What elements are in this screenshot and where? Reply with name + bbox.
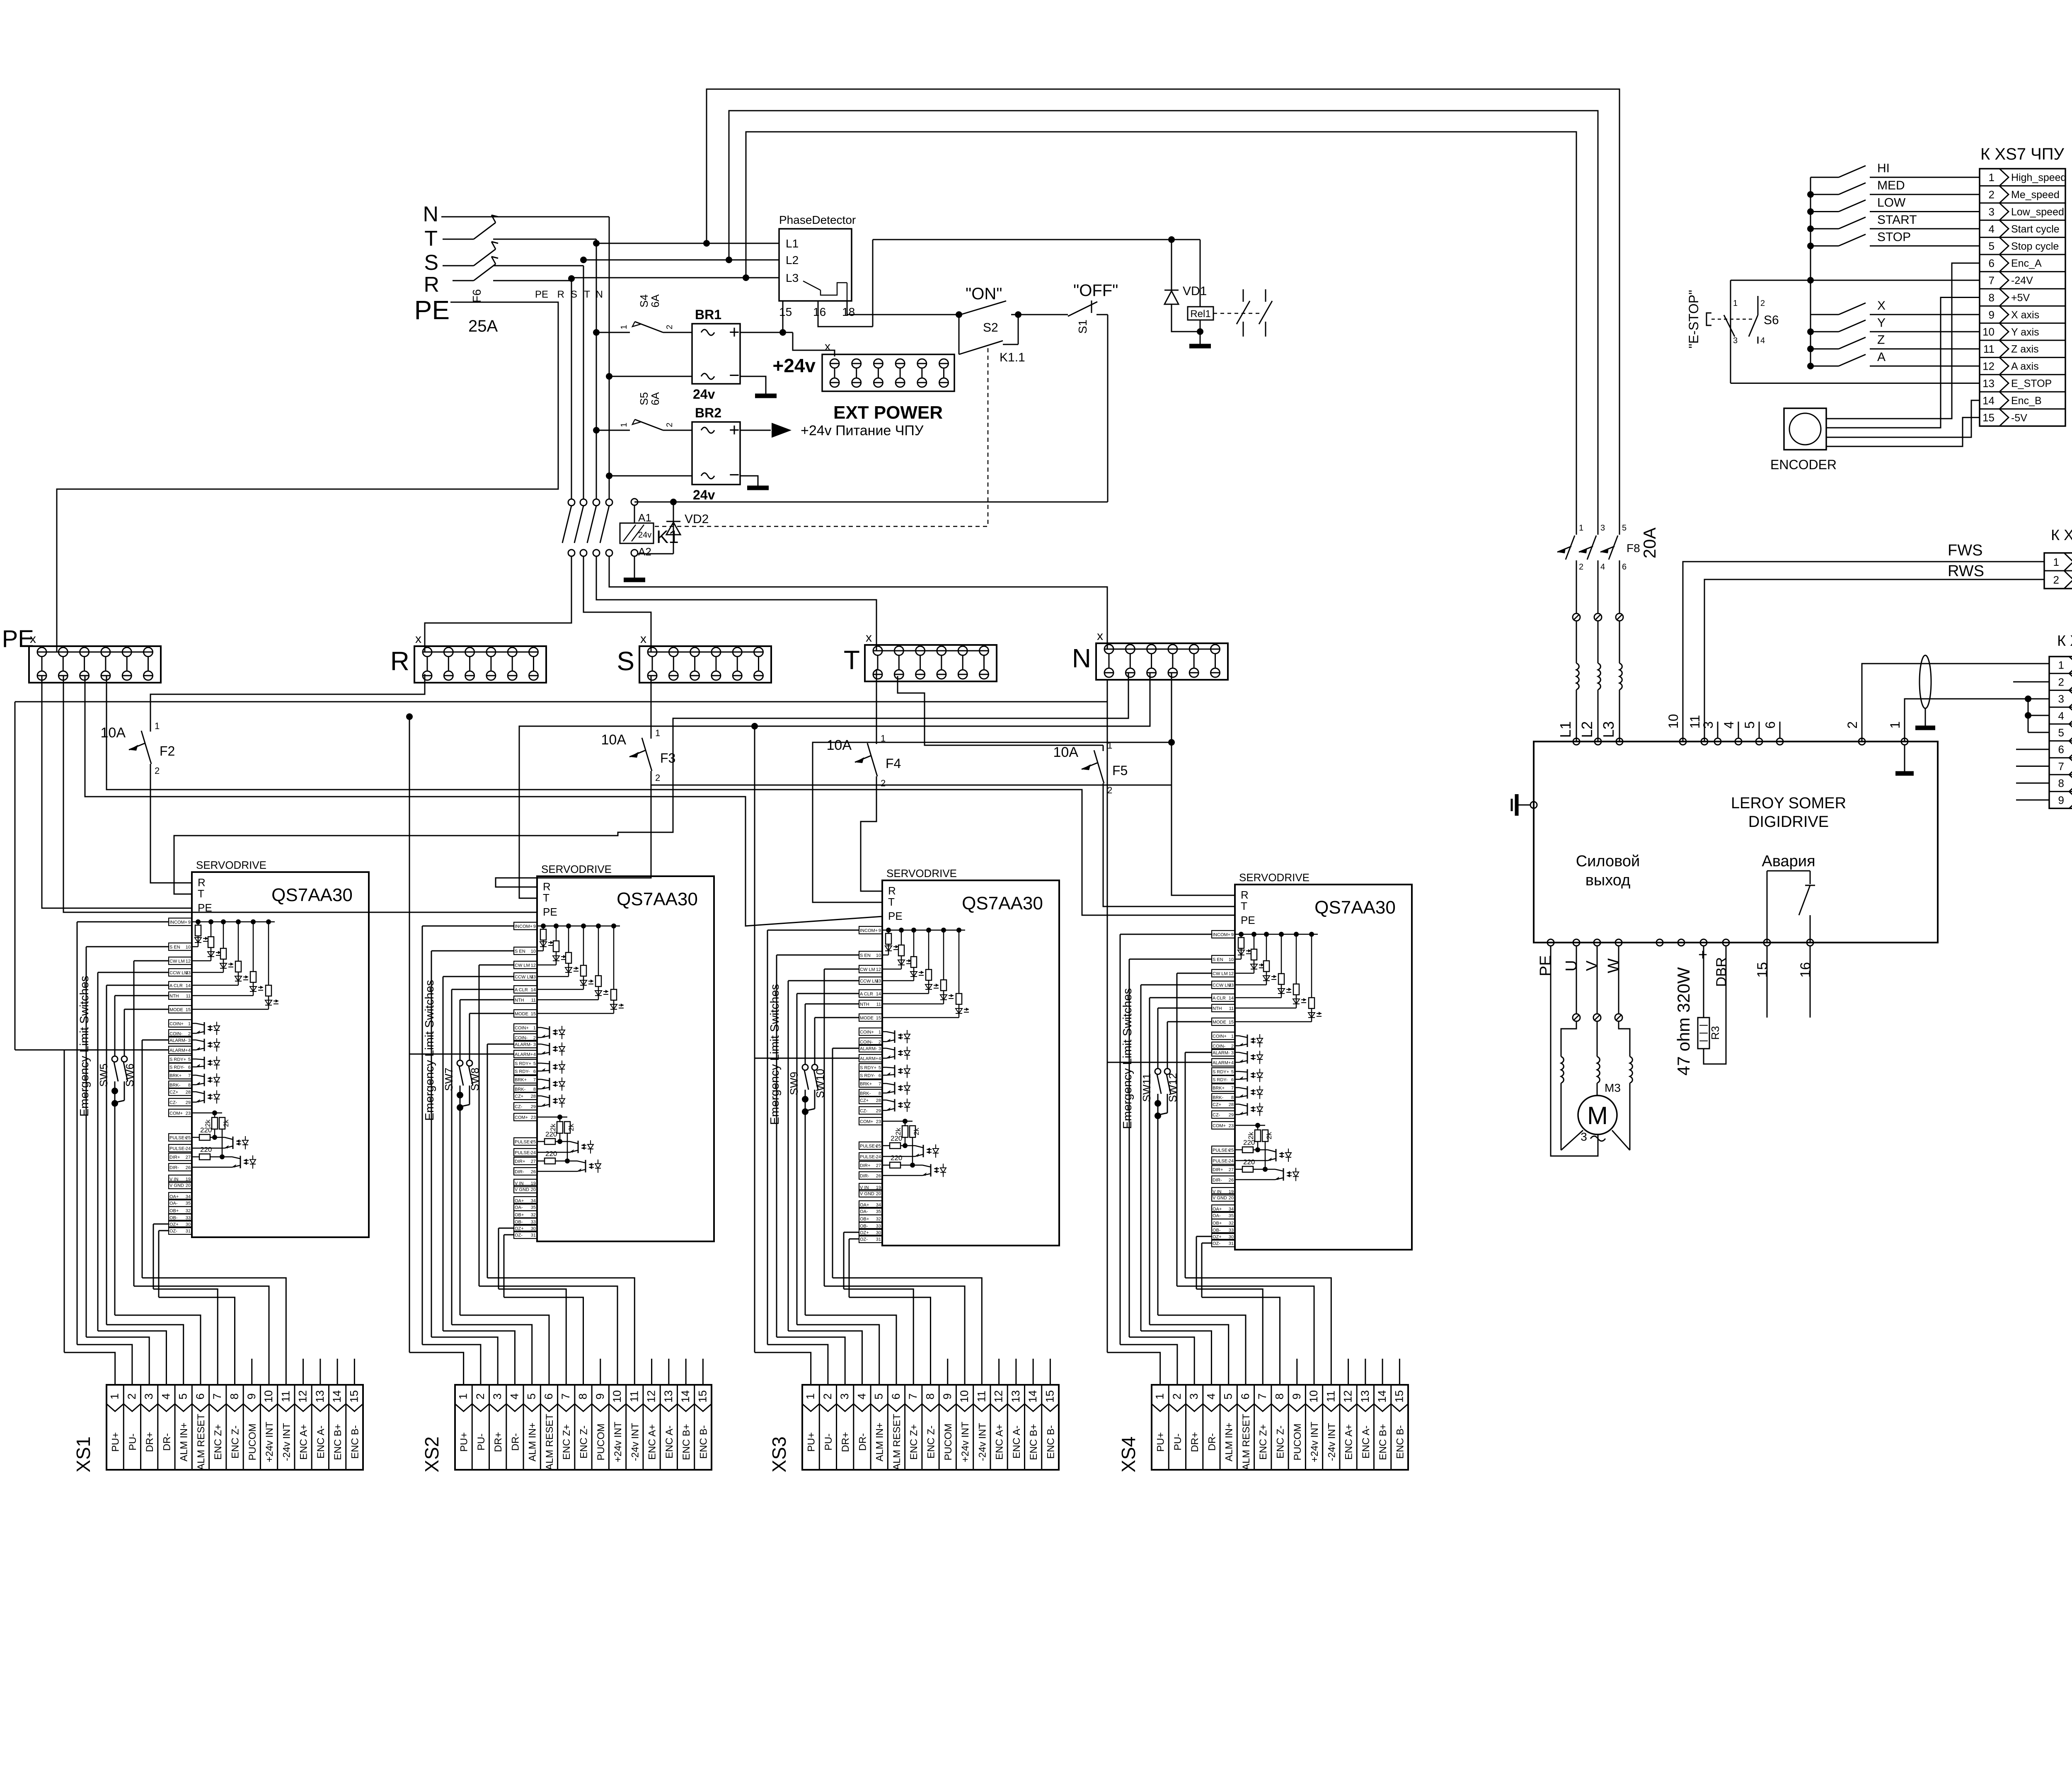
svg-text:S5: S5 [638,392,650,405]
svg-text:ENC A+: ENC A+ [647,1424,658,1460]
svg-text:8: 8 [2058,777,2064,790]
svg-text:15: 15 [531,1012,536,1017]
svg-text:PE: PE [198,902,212,914]
svg-text:3: 3 [1581,1130,1587,1143]
svg-text:T: T [1241,900,1247,912]
svg-text:2: 2 [474,1393,487,1399]
svg-text:7: 7 [559,1393,572,1399]
svg-text:ENC A+: ENC A+ [994,1424,1005,1460]
svg-text:CZ-: CZ- [515,1105,523,1110]
svg-text:4: 4 [1721,721,1736,729]
svg-text:9: 9 [1231,933,1234,938]
svg-text:13: 13 [1982,377,1995,390]
svg-text:10A: 10A [827,737,852,753]
svg-text:6A: 6A [649,392,661,405]
svg-text:DIR-: DIR- [515,1170,524,1175]
svg-text:OB+: OB+ [515,1213,524,1218]
svg-text:R: R [390,646,409,676]
svg-text:К XS8 ЧПУ: К XS8 ЧПУ [2057,632,2072,649]
svg-text:OZ+: OZ+ [1213,1235,1222,1240]
svg-text:QS7AA30: QS7AA30 [617,889,698,909]
svg-text:T: T [888,896,895,908]
svg-text:24: 24 [186,1146,191,1151]
svg-text:DBR: DBR [1714,957,1729,987]
svg-text:11: 11 [1687,715,1702,729]
svg-text:5: 5 [1231,1070,1234,1075]
svg-text:PULSE+: PULSE+ [860,1144,878,1149]
svg-text:ENC A+: ENC A+ [1343,1424,1355,1460]
svg-text:NTH: NTH [515,998,524,1003]
svg-text:2: 2 [1107,785,1112,795]
svg-text:30: 30 [531,1226,536,1231]
svg-text:6: 6 [890,1393,902,1399]
svg-text:ENC Z+: ENC Z+ [1258,1424,1269,1460]
svg-text:PE: PE [888,910,903,922]
svg-text:23: 23 [876,1120,881,1125]
svg-text:11: 11 [1229,1006,1234,1011]
svg-text:DR+: DR+ [144,1432,155,1452]
svg-text:6: 6 [1763,721,1778,729]
svg-text:ALARM-: ALARM- [1213,1051,1230,1056]
svg-text:2: 2 [879,1040,881,1045]
svg-text:32: 32 [1229,1221,1234,1226]
svg-text:ENC A+: ENC A+ [298,1424,310,1460]
svg-text:COIN+: COIN+ [1213,1034,1227,1039]
svg-text:"E-STOP": "E-STOP" [1686,290,1701,348]
svg-text:26: 26 [531,1170,536,1175]
svg-text:27: 27 [1229,1168,1234,1173]
svg-text:CZ+: CZ+ [169,1090,178,1095]
svg-text:MED: MED [1877,179,1905,192]
svg-text:COIN+: COIN+ [169,1022,184,1027]
svg-text:26: 26 [186,1166,191,1171]
svg-text:ENC Z-: ENC Z- [1275,1425,1286,1459]
svg-text:ENC B+: ENC B+ [1028,1424,1039,1460]
svg-text:10A: 10A [601,732,627,748]
svg-text:OA-: OA- [169,1201,178,1206]
svg-text:24v: 24v [638,531,651,540]
svg-text:OA+: OA+ [1213,1207,1222,1212]
svg-text:5: 5 [1222,1393,1234,1399]
svg-text:OA-: OA- [860,1209,868,1214]
svg-text:28: 28 [531,1094,536,1099]
svg-text:5: 5 [525,1393,538,1399]
svg-text:4: 4 [508,1393,520,1399]
svg-text:PU-: PU- [476,1433,487,1450]
svg-text:DR-: DR- [161,1433,172,1451]
svg-text:X: X [1877,299,1886,313]
svg-text:+24v INT: +24v INT [612,1422,624,1462]
svg-text:OB+: OB+ [860,1217,869,1222]
svg-text:4: 4 [160,1393,172,1399]
svg-text:4: 4 [533,1052,536,1057]
svg-text:A CLR: A CLR [860,992,873,997]
svg-text:BRK+: BRK+ [860,1082,872,1087]
svg-text:V GND: V GND [169,1183,184,1188]
svg-text:13: 13 [1359,1390,1371,1403]
svg-text:PULSE-: PULSE- [169,1146,186,1151]
svg-text:x: x [640,632,646,646]
svg-text:К XS6 ЧПУ: К XS6 ЧПУ [2051,526,2072,543]
svg-text:OZ-: OZ- [860,1237,868,1242]
svg-text:10: 10 [876,953,881,958]
svg-text:CW LM: CW LM [169,959,185,964]
svg-text:x: x [30,632,36,646]
svg-text:20: 20 [186,1183,191,1188]
svg-text:6: 6 [188,1065,191,1070]
svg-text:3: 3 [1989,206,1995,218]
svg-text:12: 12 [186,959,191,964]
svg-text:3: 3 [879,1047,881,1052]
svg-text:Авария: Авария [1762,853,1815,870]
svg-text:Z axis: Z axis [2011,344,2039,355]
svg-text:T: T [198,887,204,900]
svg-text:DR-: DR- [1206,1433,1218,1451]
svg-text:24v: 24v [693,387,715,402]
svg-text:13: 13 [531,975,536,980]
svg-text:OA+: OA+ [860,1203,869,1208]
svg-text:27: 27 [186,1155,191,1160]
svg-text:34: 34 [876,1203,881,1208]
svg-text:PU-: PU- [1172,1433,1184,1450]
svg-text:OB-: OB- [1213,1228,1221,1233]
svg-text:ENC Z-: ENC Z- [579,1425,590,1459]
svg-text:DIR-: DIR- [1213,1178,1222,1183]
svg-text:SW11: SW11 [1140,1074,1153,1102]
svg-text:+24v INT: +24v INT [960,1422,971,1462]
svg-text:6: 6 [1989,257,1995,269]
svg-text:F3: F3 [660,751,675,766]
svg-text:PULSE+: PULSE+ [515,1140,533,1145]
svg-text:ALARM+: ALARM+ [515,1052,533,1057]
svg-text:F2: F2 [160,744,175,759]
svg-text:6: 6 [1231,1078,1234,1083]
svg-text:18: 18 [842,305,855,318]
svg-text:12: 12 [992,1390,1005,1403]
svg-text:11: 11 [279,1391,292,1402]
svg-text:Stop cycle: Stop cycle [2011,240,2059,252]
svg-text:R: R [1241,889,1249,901]
svg-text:7: 7 [907,1393,919,1399]
svg-text:25: 25 [876,1144,881,1149]
svg-text:26: 26 [876,1174,881,1179]
svg-text:MODE: MODE [860,1016,874,1021]
svg-text:S EN: S EN [515,949,525,954]
svg-text:1: 1 [1231,1034,1234,1039]
svg-text:2: 2 [1845,721,1860,729]
svg-text:"ON": "ON" [966,285,1002,303]
svg-text:24v: 24v [693,487,715,502]
svg-text:2: 2 [881,778,886,788]
svg-text:S: S [617,646,634,676]
svg-text:2: 2 [2058,676,2064,688]
svg-text:PE: PE [535,289,548,300]
svg-text:10: 10 [262,1390,275,1403]
svg-text:выход: выход [1585,872,1631,889]
svg-text:ENC Z-: ENC Z- [230,1425,241,1459]
svg-text:20: 20 [1229,1196,1234,1201]
svg-text:7: 7 [188,1074,191,1078]
svg-text:SERVODRIVE: SERVODRIVE [886,867,957,880]
svg-text:OZ-: OZ- [515,1233,523,1238]
svg-text:SW5: SW5 [97,1064,110,1087]
svg-text:10: 10 [531,949,536,954]
svg-text:30: 30 [1229,1235,1234,1240]
svg-text:Emergency Limit Switches: Emergency Limit Switches [423,980,436,1121]
svg-text:27: 27 [531,1159,536,1164]
svg-text:3: 3 [1600,523,1605,533]
svg-text:PUCOM: PUCOM [943,1423,954,1460]
svg-text:13: 13 [876,979,881,984]
svg-text:13: 13 [314,1390,326,1403]
svg-text:Emergency Limit Switches: Emergency Limit Switches [1121,988,1134,1129]
svg-text:+5V: +5V [2011,292,2030,304]
svg-text:A CLR: A CLR [169,984,183,989]
svg-text:9: 9 [188,920,191,925]
svg-text:1: 1 [1154,1393,1166,1399]
svg-text:CZ+: CZ+ [515,1094,523,1099]
svg-text:BRK+: BRK+ [1213,1086,1225,1091]
svg-text:23: 23 [1229,1124,1234,1129]
svg-text:R: R [888,885,896,897]
svg-text:11: 11 [531,998,536,1003]
svg-text:L1: L1 [1557,721,1574,738]
svg-text:13: 13 [1009,1390,1022,1403]
svg-text:S RDY+: S RDY+ [1213,1070,1229,1075]
svg-text:ALM RESET: ALM RESET [196,1414,207,1470]
svg-text:−: − [729,465,740,485]
svg-text:7: 7 [1231,1086,1234,1091]
svg-text:1: 1 [1733,299,1738,308]
svg-text:Me_speed: Me_speed [2011,189,2060,201]
svg-text:11: 11 [628,1391,640,1402]
svg-text:ENC A-: ENC A- [1360,1425,1372,1459]
svg-text:+24v Питание ЧПУ: +24v Питание ЧПУ [801,423,924,439]
svg-text:NTH: NTH [1213,1006,1222,1011]
svg-text:3: 3 [188,1038,191,1043]
svg-text:L2: L2 [1578,721,1595,738]
svg-text:INCOM+: INCOM+ [860,928,878,933]
svg-text:R: R [424,273,439,297]
svg-text:1: 1 [1107,740,1112,751]
svg-text:M: M [1587,1102,1608,1129]
svg-text:31: 31 [1229,1241,1234,1246]
svg-text:30: 30 [876,1231,881,1236]
svg-text:33: 33 [531,1220,536,1225]
svg-text:7: 7 [1989,274,1995,286]
svg-text:OB-: OB- [169,1216,178,1221]
svg-text:10: 10 [958,1390,971,1403]
svg-text:ALARM-: ALARM- [860,1047,877,1052]
svg-text:COM+: COM+ [860,1120,873,1125]
svg-text:7: 7 [533,1078,536,1083]
svg-text:27: 27 [876,1163,881,1168]
svg-text:PUCOM: PUCOM [247,1423,258,1460]
svg-text:T: T [844,645,860,675]
svg-text:6: 6 [1622,562,1627,572]
svg-text:Low_speed: Low_speed [2011,206,2064,218]
svg-text:x: x [825,340,830,353]
svg-text:+24v INT: +24v INT [1309,1422,1320,1462]
svg-text:Start cycle: Start cycle [2011,223,2060,235]
svg-text:220: 220 [545,1130,557,1138]
svg-text:2: 2 [155,766,160,776]
svg-text:X axis: X axis [2011,309,2039,321]
svg-text:S1: S1 [1076,320,1089,334]
svg-text:32: 32 [876,1217,881,1222]
svg-text:2: 2 [1760,299,1765,308]
svg-text:7: 7 [211,1393,223,1399]
svg-text:DIGIDRIVE: DIGIDRIVE [1748,813,1829,831]
svg-text:CW LM: CW LM [515,963,530,968]
svg-text:COIN-: COIN- [515,1036,528,1041]
svg-text:PhaseDetector: PhaseDetector [779,213,856,226]
svg-text:INCOM+: INCOM+ [169,920,187,925]
svg-text:26: 26 [1229,1178,1234,1183]
svg-text:5: 5 [2058,727,2064,739]
svg-text:3: 3 [491,1393,503,1399]
svg-text:T: T [424,227,438,251]
svg-text:3: 3 [533,1042,536,1047]
svg-text:16: 16 [813,305,826,318]
svg-text:15: 15 [1982,412,1995,424]
svg-text:DR+: DR+ [840,1432,851,1452]
svg-text:A: A [1877,350,1886,364]
svg-text:+: + [729,322,740,342]
svg-text:2: 2 [188,1032,191,1037]
svg-text:2: 2 [655,773,660,783]
svg-text:OZ+: OZ+ [169,1222,179,1227]
svg-text:A CLR: A CLR [515,988,528,993]
svg-text:14: 14 [876,992,881,997]
svg-text:HI: HI [1877,162,1890,175]
svg-text:QS7AA30: QS7AA30 [271,885,353,905]
svg-text:S RDY-: S RDY- [169,1065,185,1070]
svg-text:10: 10 [611,1390,623,1403]
svg-text:R: R [557,289,564,300]
svg-text:5: 5 [1622,523,1627,533]
svg-text:1: 1 [881,733,886,744]
svg-text:−: − [729,365,740,385]
svg-text:9: 9 [2058,794,2064,806]
svg-text:14: 14 [331,1390,343,1403]
svg-text:L3: L3 [1600,721,1617,738]
svg-text:S RDY+: S RDY+ [860,1066,876,1071]
svg-text:S RDY-: S RDY- [1213,1078,1228,1083]
svg-text:6: 6 [194,1393,206,1399]
svg-text:34: 34 [531,1199,536,1204]
svg-text:S: S [424,251,438,275]
svg-text:10: 10 [186,945,191,950]
svg-text:A2: A2 [638,545,651,558]
svg-text:1: 1 [804,1393,817,1399]
svg-text:6: 6 [533,1069,536,1074]
svg-text:V: V [1583,960,1601,971]
svg-text:2: 2 [1171,1393,1183,1399]
svg-text:3: 3 [1188,1393,1200,1399]
svg-text:E_STOP: E_STOP [2011,378,2052,390]
svg-text:2: 2 [2053,574,2059,586]
svg-text:220: 220 [891,1134,902,1142]
svg-text:3: 3 [143,1393,155,1399]
svg-text:2k: 2k [222,1120,230,1127]
svg-text:OA-: OA- [515,1205,523,1210]
svg-text:S EN: S EN [169,945,180,950]
svg-text:15: 15 [779,305,792,318]
svg-text:DIR-: DIR- [860,1174,869,1179]
svg-text:MODE: MODE [1213,1020,1226,1025]
svg-text:4: 4 [1600,562,1605,572]
svg-text:1: 1 [655,728,660,738]
svg-text:ALM RESET: ALM RESET [891,1414,903,1470]
svg-text:29: 29 [1229,1113,1234,1118]
svg-text:15: 15 [1229,1020,1234,1025]
svg-text:5: 5 [533,1062,536,1066]
svg-text:-24v INT: -24v INT [281,1423,292,1461]
svg-text:OA-: OA- [1213,1214,1221,1219]
svg-text:14: 14 [1026,1390,1039,1403]
svg-text:DR-: DR- [510,1433,521,1451]
svg-text:15: 15 [876,1016,881,1021]
svg-text:9: 9 [533,924,536,929]
svg-text:COIN-: COIN- [860,1040,873,1045]
svg-text:L1: L1 [786,237,799,250]
svg-text:4: 4 [1231,1061,1234,1066]
svg-text:FWS: FWS [1948,542,1982,559]
svg-text:CW LM: CW LM [860,967,875,972]
svg-text:S4: S4 [638,294,650,308]
svg-text:+24v INT: +24v INT [264,1422,275,1462]
svg-text:DIR+: DIR+ [515,1159,525,1164]
svg-text:CW LM: CW LM [1213,972,1228,977]
svg-text:1: 1 [1579,523,1583,533]
svg-text:T: T [543,892,549,904]
svg-text:ENC B+: ENC B+ [681,1424,692,1460]
svg-text:COIN+: COIN+ [515,1026,529,1031]
svg-text:15: 15 [348,1390,360,1403]
svg-text:9: 9 [245,1393,258,1399]
svg-text:23: 23 [531,1115,536,1120]
svg-text:COIN-: COIN- [169,1032,183,1037]
svg-text:PULSE-: PULSE- [515,1151,531,1156]
svg-text:+: + [729,420,740,440]
svg-text:2: 2 [533,1036,536,1041]
svg-text:F5: F5 [1112,763,1128,778]
svg-text:BR2: BR2 [695,405,721,420]
svg-text:PUCOM: PUCOM [1292,1423,1303,1460]
svg-text:4: 4 [1989,223,1995,235]
svg-text:ALARM-: ALARM- [169,1038,187,1043]
svg-text:13: 13 [1229,983,1234,988]
svg-text:1: 1 [457,1393,470,1399]
svg-text:2k: 2k [1265,1132,1273,1139]
svg-text:OB+: OB+ [169,1209,179,1214]
svg-text:S RDY+: S RDY+ [169,1057,186,1062]
svg-text:25: 25 [531,1140,536,1145]
svg-text:12: 12 [876,967,881,972]
svg-text:XS3: XS3 [768,1437,790,1473]
svg-text:10A: 10A [1053,744,1079,760]
svg-text:PU+: PU+ [459,1432,470,1452]
svg-text:V GND: V GND [860,1192,874,1197]
svg-text:K1: K1 [656,527,679,547]
svg-text:2: 2 [665,422,674,427]
svg-text:F8: F8 [1627,542,1640,555]
svg-text:S RDY-: S RDY- [515,1069,530,1074]
svg-text:15: 15 [1393,1390,1405,1403]
svg-text:1: 1 [533,1026,536,1031]
svg-text:15: 15 [186,1008,191,1013]
